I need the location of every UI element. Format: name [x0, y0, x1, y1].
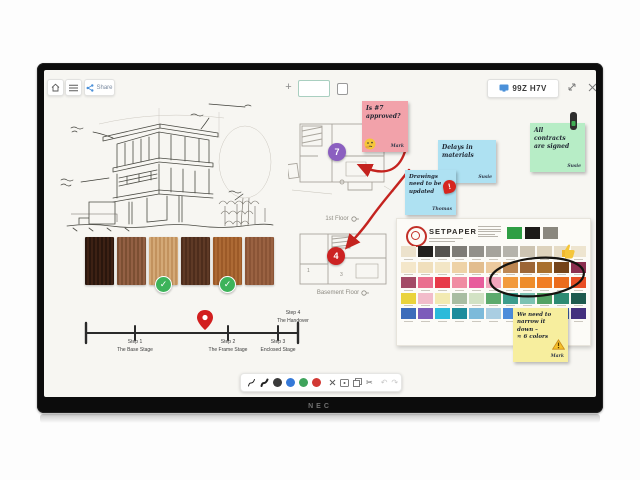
palette-swatch [401, 246, 416, 260]
palette-swatch [503, 246, 518, 260]
palette-swatch [469, 262, 484, 276]
palette-swatch [452, 262, 467, 276]
palette-swatch [486, 277, 501, 291]
timeline-step-2: Step 2The Frame Stage [208, 339, 248, 354]
palette-swatch [537, 277, 552, 291]
wood-swatch[interactable] [181, 237, 210, 285]
fine-print [429, 238, 463, 242]
palette-swatch [401, 277, 416, 291]
palette-swatch [452, 308, 467, 322]
palette-title: SETPAPER [429, 227, 477, 236]
palette-swatch [469, 308, 484, 322]
copy-tool[interactable] [353, 377, 362, 389]
clipboard-icon[interactable] [337, 83, 348, 95]
palette-swatch [525, 227, 540, 239]
palette-swatch [571, 308, 586, 322]
palette-swatch [571, 277, 586, 291]
room-number: 3 [340, 272, 343, 278]
palette-swatch [543, 227, 558, 239]
wood-samples[interactable]: ✓✓ [85, 237, 280, 293]
monitor-reflection [40, 414, 600, 423]
palette-swatch [554, 262, 569, 276]
setpaper-seal-logo [406, 226, 427, 247]
pen-color-dot[interactable] [273, 378, 282, 387]
pen-thick-tool[interactable] [260, 377, 269, 389]
delete-tool[interactable] [329, 377, 336, 389]
cut-tool[interactable]: ✂ [366, 377, 373, 389]
sticky-note-contracts[interactable]: All contracts are signed Susie [530, 123, 585, 172]
product-photo: Share + 99Z H7V [0, 0, 640, 480]
palette-swatch [486, 293, 501, 307]
palette-swatch [486, 308, 501, 322]
approved-check-icon: ✓ [155, 276, 172, 293]
palette-swatch [435, 308, 450, 322]
share-button[interactable]: Share [84, 79, 115, 96]
wood-swatch[interactable] [85, 237, 114, 285]
resize-button[interactable] [566, 81, 578, 93]
palette-swatch [503, 293, 518, 307]
palette-header-swatches [507, 227, 558, 239]
nec-logo: NEC [37, 403, 603, 410]
palette-swatch [571, 246, 586, 260]
palette-swatch [520, 293, 535, 307]
close-icon [588, 83, 597, 92]
fine-print [478, 226, 501, 237]
palette-swatch [503, 277, 518, 291]
palette-swatch [435, 262, 450, 276]
hamburger-icon [69, 84, 78, 92]
redo-button[interactable]: ↷ [391, 377, 398, 389]
share-icon [86, 84, 94, 92]
menu-button[interactable] [65, 79, 82, 96]
approved-check-icon: ✓ [219, 276, 236, 293]
architecture-sketch[interactable] [59, 102, 279, 234]
palette-swatch [435, 246, 450, 260]
sticky-note-colors[interactable]: We need to narrow it down – ≈ 6 colors M… [513, 308, 568, 362]
timeline-step-1: Step 1The Base Stage [115, 339, 155, 354]
clip-pin-icon [568, 112, 579, 131]
wood-swatch[interactable] [117, 237, 146, 285]
palette-swatch [554, 246, 569, 260]
plan-zoom-icon[interactable] [361, 290, 369, 296]
drawing-toolbar: ✂ ↶ ↷ [240, 373, 402, 392]
resize-icon [567, 82, 577, 92]
palette-swatch [537, 246, 552, 260]
palette-swatch [537, 262, 552, 276]
palette-swatch [418, 308, 433, 322]
palette-swatch [571, 293, 586, 307]
palette-swatch [435, 277, 450, 291]
palette-swatch [486, 246, 501, 260]
palette-swatch [469, 246, 484, 260]
pen-color-dot[interactable] [299, 378, 308, 387]
first-floor-label: 1st Floor [288, 216, 396, 222]
display-icon [499, 84, 509, 93]
plus-icon[interactable]: + [282, 81, 295, 94]
pen-thin-tool[interactable] [247, 377, 256, 389]
palette-swatch [401, 262, 416, 276]
timeline-step-3: Step 3Enclosed Stage [258, 339, 298, 354]
pen-color-dot[interactable] [286, 378, 295, 387]
pen-colors [273, 378, 321, 387]
whiteboard-screen: Share + 99Z H7V [44, 70, 596, 397]
home-button[interactable] [47, 79, 64, 96]
timeline-step-4: Step 4The Handover [270, 310, 316, 325]
close-button[interactable] [586, 81, 596, 93]
pen-color-dot[interactable] [312, 378, 321, 387]
home-icon [51, 83, 60, 92]
palette-swatch [537, 293, 552, 307]
warning-triangle-icon [552, 339, 565, 350]
palette-swatch [452, 246, 467, 260]
palette-swatch [486, 262, 501, 276]
palette-swatch [571, 262, 586, 276]
session-code-badge[interactable]: 99Z H7V [487, 79, 559, 98]
palette-swatch [507, 227, 522, 239]
location-pin-icon [197, 310, 213, 330]
palette-swatch [418, 277, 433, 291]
basement-floor-label: Basement Floor [288, 290, 398, 296]
palette-swatch [435, 293, 450, 307]
palette-swatch [418, 246, 433, 260]
palette-swatch [452, 293, 467, 307]
palette-swatch [401, 308, 416, 322]
share-label: Share [96, 85, 112, 91]
sticky-note-pink[interactable]: Is #7 approved? Mark [362, 101, 408, 152]
plan-zoom-icon[interactable] [351, 216, 359, 222]
palette-swatch [418, 293, 433, 307]
nec-display: Share + 99Z H7V [37, 63, 603, 413]
palette-swatch [520, 246, 535, 260]
palette-swatch [469, 277, 484, 291]
undo-button[interactable]: ↶ [381, 377, 388, 389]
palette-swatch [520, 262, 535, 276]
session-code: 99Z H7V [512, 84, 546, 93]
thinking-emoji [364, 138, 376, 150]
pin-badge-7[interactable]: 7 [328, 143, 346, 161]
pin-badge-4[interactable]: 4 [327, 247, 345, 265]
frame-tool[interactable] [340, 377, 349, 389]
canvas-input[interactable] [298, 80, 330, 97]
room-number: 1 [307, 268, 310, 274]
palette-swatch [401, 293, 416, 307]
palette-swatch [418, 262, 433, 276]
palette-swatch [554, 277, 569, 291]
palette-swatch [503, 262, 518, 276]
palette-swatch [554, 293, 569, 307]
palette-swatch [520, 277, 535, 291]
wood-swatch[interactable] [245, 237, 274, 285]
palette-swatch [469, 293, 484, 307]
palette-swatch [452, 277, 467, 291]
